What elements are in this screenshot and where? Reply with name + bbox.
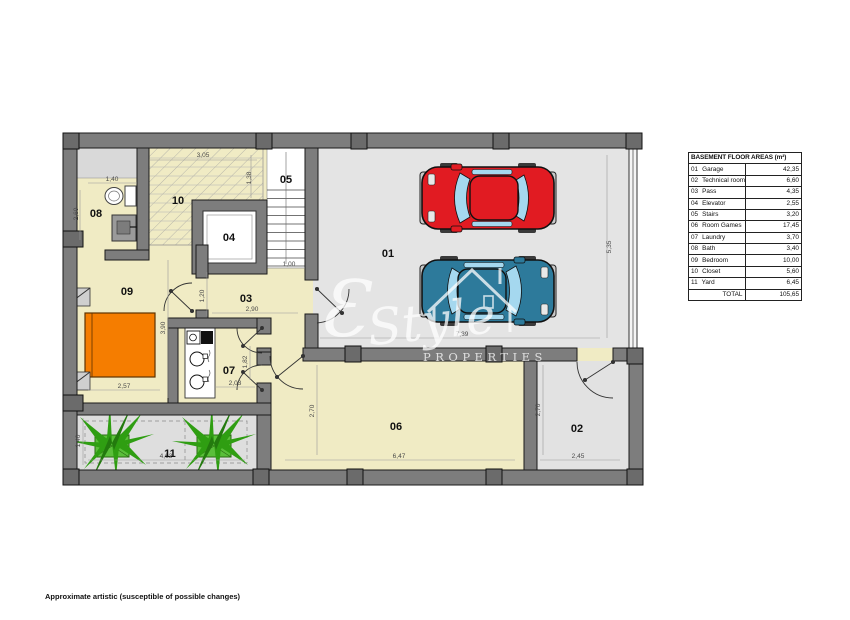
- area-row: 11Yard6,45: [689, 278, 802, 289]
- floor-plan: 3,05 1,38 1,40 2,60 1,00 5,35 7,89 3,90 …: [0, 0, 850, 620]
- table-title-row: BASEMENT FLOOR AREAS (m²): [689, 153, 802, 164]
- bed: [85, 313, 155, 377]
- area-value: 6,45: [745, 278, 802, 289]
- stairs: [267, 148, 305, 268]
- room-label-yard: 11: [164, 448, 176, 460]
- dim-text: 1,40: [106, 176, 119, 183]
- dim-text: 5,35: [606, 240, 613, 253]
- area-label: 06Room Games: [689, 221, 746, 232]
- area-label: 03Pass: [689, 187, 746, 198]
- area-row: 08Bath3,40: [689, 244, 802, 255]
- area-value: 2,55: [745, 198, 802, 209]
- floor-areas-rows: 01Garage42,3502Technical room6,6003Pass4…: [689, 164, 802, 289]
- area-row: 03Pass4,35: [689, 187, 802, 198]
- dim-text: 2,45: [572, 453, 585, 460]
- sink-icon: [112, 215, 138, 241]
- area-value: 17,45: [745, 221, 802, 232]
- dryer-icon: [201, 331, 213, 344]
- bath-top-strip: [77, 148, 137, 178]
- area-value: 3,20: [745, 209, 802, 220]
- table-title: BASEMENT FLOOR AREAS (m²): [689, 153, 802, 164]
- area-label: 07Laundry: [689, 232, 746, 243]
- room-label-games: 06: [390, 421, 402, 433]
- dim-text: 2,60: [73, 207, 80, 220]
- room-label-stairs: 05: [280, 174, 292, 186]
- garage-window-wall: [629, 148, 637, 350]
- room-label-bedroom: 09: [121, 286, 133, 298]
- area-label: 09Bedroom: [689, 255, 746, 266]
- area-label: 05Stairs: [689, 209, 746, 220]
- area-row: 07Laundry3,70: [689, 232, 802, 243]
- floor-areas-table: BASEMENT FLOOR AREAS (m²) 01Garage42,350…: [688, 152, 802, 301]
- area-label: 08Bath: [689, 244, 746, 255]
- area-row: 09Bedroom10,00: [689, 255, 802, 266]
- area-value: 6,60: [745, 175, 802, 186]
- dim-text: 2,70: [535, 403, 542, 416]
- area-value: 3,40: [745, 244, 802, 255]
- total-row: TOTAL 105,65: [689, 289, 802, 300]
- dim-text: 1,82: [242, 355, 249, 368]
- dim-text: 1,00: [283, 261, 296, 268]
- watermark-caption: PROPERTIES: [423, 350, 547, 364]
- sink-icon: [190, 352, 204, 366]
- laundry-fixtures: [185, 328, 215, 398]
- washer-icon: [187, 331, 200, 344]
- area-value: 5,60: [745, 266, 802, 277]
- dim-text: 2,03: [229, 380, 242, 387]
- area-label: 01Garage: [689, 164, 746, 175]
- dim-text: 2,90: [246, 306, 259, 313]
- disclaimer-text: Approximate artistic (susceptible of pos…: [45, 592, 240, 601]
- area-label: 10Closet: [689, 266, 746, 277]
- area-value: 4,35: [745, 187, 802, 198]
- dim-text: 1,40: [75, 434, 82, 447]
- sink-icon: [190, 375, 204, 389]
- dim-text: 6,47: [393, 453, 406, 460]
- room-label-laundry: 07: [223, 365, 235, 377]
- area-value: 42,35: [745, 164, 802, 175]
- room-label-bath: 08: [90, 208, 102, 220]
- room-label-elevator: 04: [223, 232, 236, 244]
- dim-text: 1,38: [246, 171, 253, 184]
- room-label-closet: 10: [172, 195, 184, 207]
- room-label-garage: 01: [382, 248, 394, 260]
- area-row: 05Stairs3,20: [689, 209, 802, 220]
- area-label: 11Yard: [689, 278, 746, 289]
- dim-text: 3,05: [197, 152, 210, 159]
- area-row: 10Closet5,60: [689, 266, 802, 277]
- area-label: 02Technical room: [689, 175, 746, 186]
- area-row: 06Room Games17,45: [689, 221, 802, 232]
- dim-text: 3,90: [160, 321, 167, 334]
- floor-plan-page: 3,05 1,38 1,40 2,60 1,00 5,35 7,89 3,90 …: [0, 0, 850, 620]
- total-label: TOTAL: [689, 289, 746, 300]
- area-row: 04Elevator2,55: [689, 198, 802, 209]
- room-label-pass: 03: [240, 293, 252, 305]
- total-value: 105,65: [745, 289, 802, 300]
- area-value: 10,00: [745, 255, 802, 266]
- dim-text: 2,57: [118, 383, 131, 390]
- room-label-technical: 02: [571, 423, 583, 435]
- area-value: 3,70: [745, 232, 802, 243]
- dim-text: 2,70: [309, 404, 316, 417]
- red-car-icon: [420, 163, 556, 233]
- area-row: 02Technical room6,60: [689, 175, 802, 186]
- area-label: 04Elevator: [689, 198, 746, 209]
- dim-text: 1,20: [199, 289, 206, 302]
- area-row: 01Garage42,35: [689, 164, 802, 175]
